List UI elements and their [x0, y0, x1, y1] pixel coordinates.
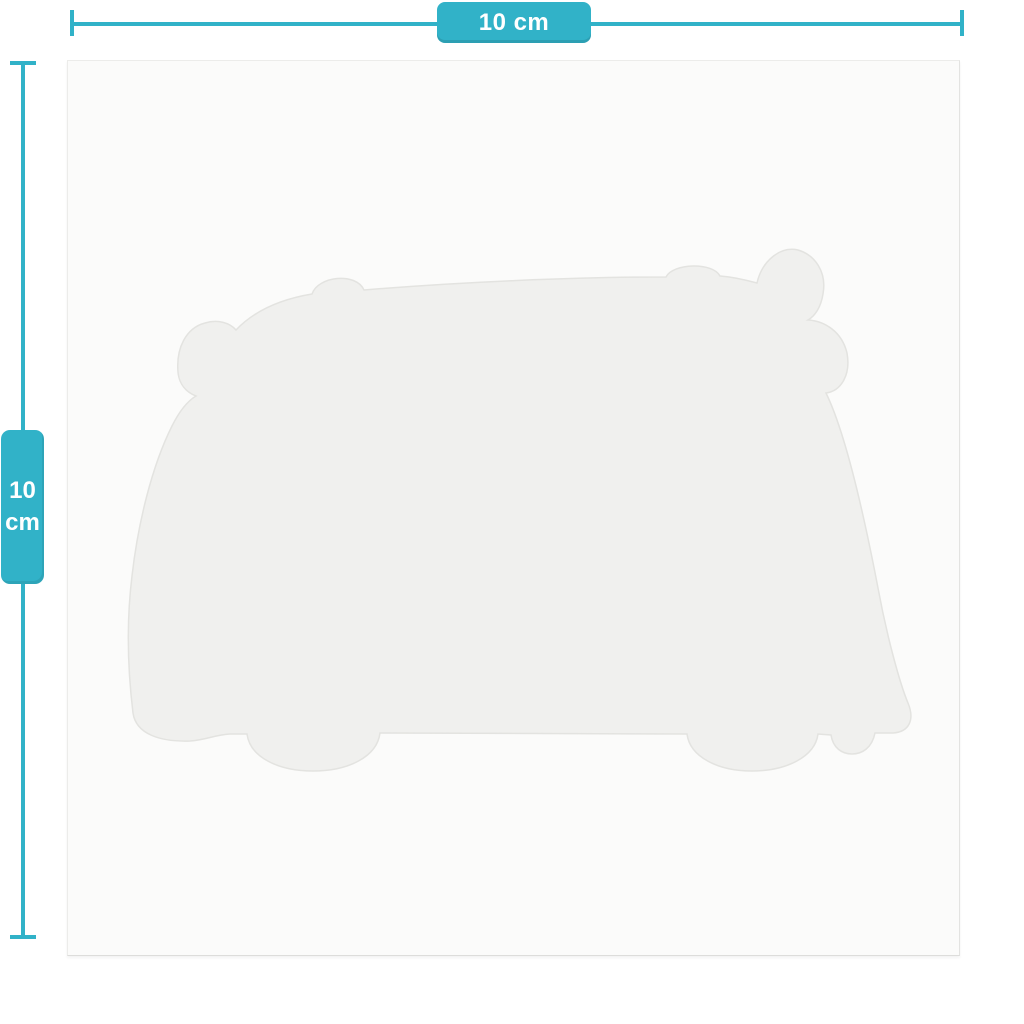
- width-dimension-right-tick: [960, 10, 964, 36]
- height-dimension-value: 10: [9, 475, 36, 507]
- height-dimension-top-tick: [10, 61, 36, 65]
- height-dimension-label: 10 cm: [1, 430, 44, 584]
- dimension-diagram: 10 cm 10 cm: [0, 0, 1024, 1024]
- height-dimension-unit: cm: [5, 507, 40, 539]
- width-dimension-label: 10 cm: [437, 2, 591, 43]
- height-dimension-bottom-tick: [10, 935, 36, 939]
- width-dimension-left-tick: [70, 10, 74, 36]
- product-card: [67, 60, 960, 956]
